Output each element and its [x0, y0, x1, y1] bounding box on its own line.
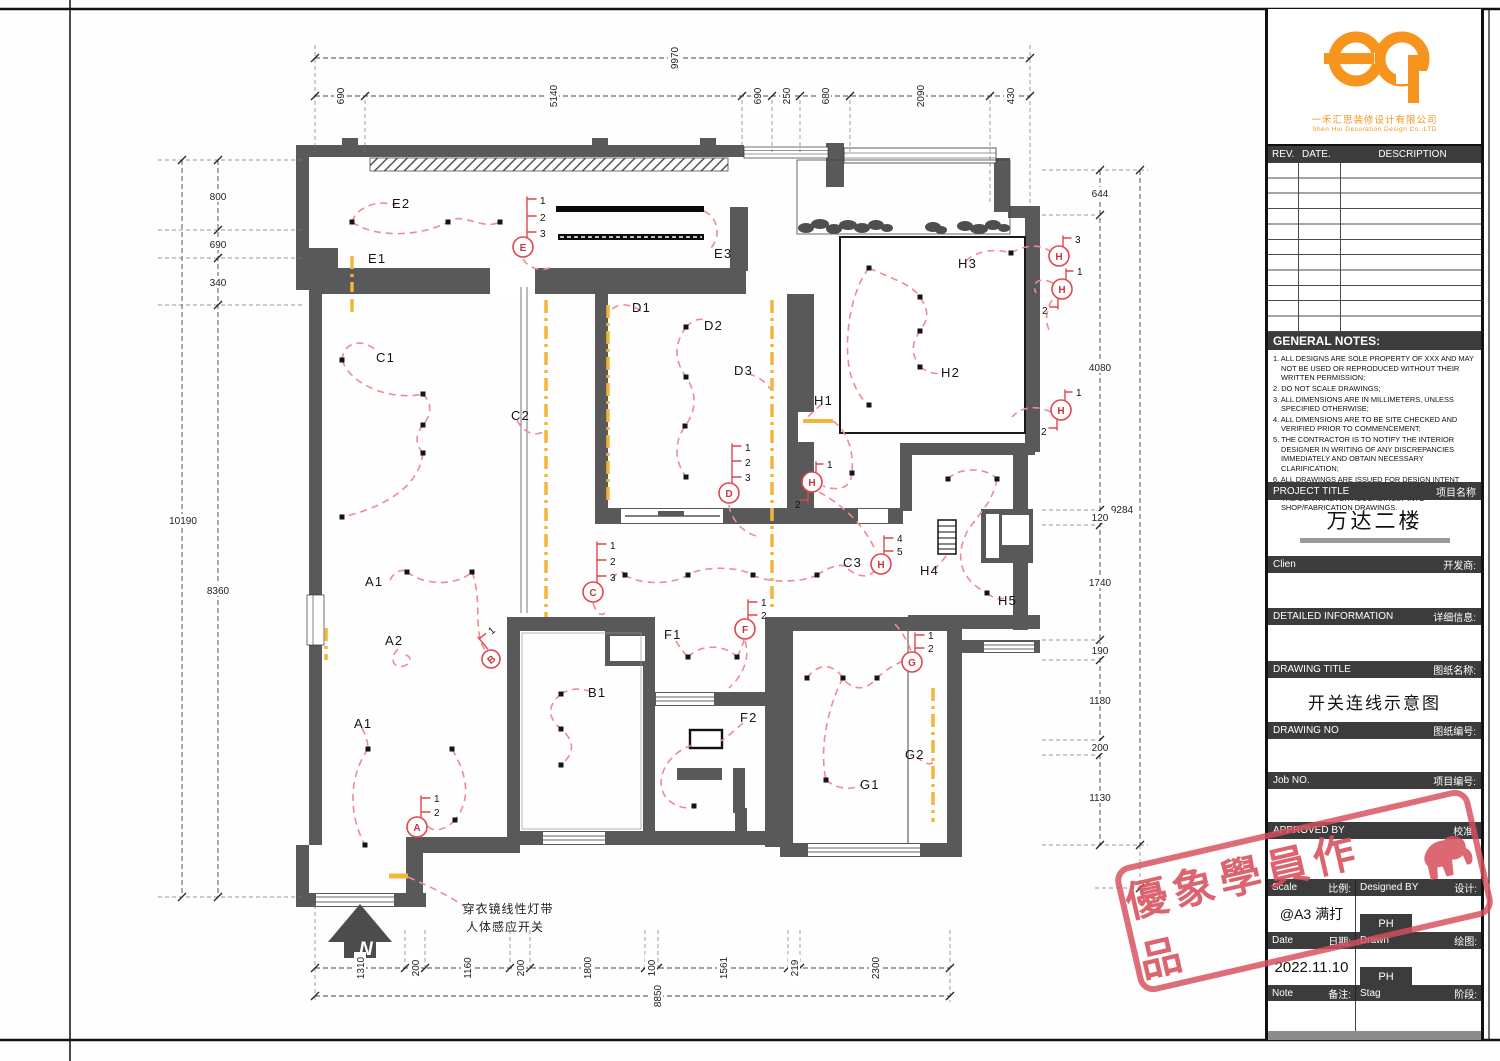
svg-text:200: 200	[516, 959, 527, 976]
svg-text:3: 3	[610, 573, 616, 584]
svg-text:219: 219	[790, 959, 801, 976]
svg-text:C: C	[589, 588, 596, 599]
label-E2: E2	[392, 196, 410, 211]
fixtures	[690, 520, 956, 748]
label-A1: A1	[365, 574, 383, 589]
svg-text:800: 800	[210, 192, 227, 203]
svg-text:9970: 9970	[670, 46, 681, 69]
svg-text:680: 680	[821, 87, 832, 104]
svg-text:2: 2	[540, 213, 546, 224]
rev-table	[1268, 163, 1481, 332]
svg-text:690: 690	[210, 240, 227, 251]
svg-text:200: 200	[411, 959, 422, 976]
switch-D: D 1 2 3	[719, 443, 751, 503]
svg-text:1130: 1130	[1089, 793, 1111, 804]
svg-text:2: 2	[795, 500, 801, 511]
project-title-bar: PROJECT TITLE 项目名称	[1268, 482, 1481, 500]
svg-text:8850: 8850	[653, 984, 664, 1007]
scale-value: @A3 满打	[1268, 896, 1356, 932]
svg-text:2: 2	[928, 644, 934, 655]
svg-text:1310: 1310	[356, 956, 367, 979]
svg-text:690: 690	[753, 87, 764, 104]
drawing-title-bar: DRAWING TITLE 图纸名称:	[1268, 661, 1481, 678]
label-F1: F1	[664, 627, 682, 642]
company-logo	[1268, 13, 1484, 105]
label-A1b: A1	[354, 716, 372, 731]
date-drawn-bar: Date日期: Drawn绘图:	[1268, 932, 1481, 949]
svg-text:3: 3	[1075, 235, 1081, 246]
svg-text:F: F	[742, 625, 748, 636]
svg-text:G: G	[908, 658, 916, 669]
company-logo-box: 一禾汇思装修设计有限公司 Shen Hui Decoration Design …	[1268, 9, 1481, 146]
svg-text:1: 1	[434, 794, 440, 805]
svg-text:D: D	[725, 489, 732, 500]
svg-text:1160: 1160	[463, 957, 474, 979]
svg-text:2: 2	[610, 557, 616, 568]
svg-text:4080: 4080	[1089, 363, 1112, 374]
svg-text:人体感应开关: 人体感应开关	[466, 919, 544, 934]
switch-C: C 1 2 3	[583, 541, 616, 602]
switch-H-lower: H 1 2	[1041, 388, 1082, 438]
label-C2: C2	[511, 408, 530, 423]
label-E1: E1	[368, 251, 386, 266]
general-notes-header: GENERAL NOTES:	[1268, 332, 1481, 350]
date-drawn-values: 2022.11.10 PH	[1268, 949, 1481, 985]
scale-designed-bar: Scale比例: Designed BY设计:	[1268, 879, 1481, 896]
note-3: 3. ALL DIMENSIONS ARE IN MILLIMETERS, UN…	[1273, 395, 1476, 414]
rev-table-header: REV. DATE. DESCRIPTION	[1268, 146, 1481, 163]
svg-text:1: 1	[610, 541, 616, 552]
svg-text:100: 100	[647, 959, 658, 976]
drawn-value: PH	[1360, 967, 1412, 986]
note-4: 4. ALL DIMENSIONS ARE TO BE SITE CHECKED…	[1273, 415, 1476, 434]
linear-light-bars	[556, 206, 704, 240]
svg-text:8360: 8360	[207, 586, 230, 597]
svg-text:A: A	[413, 823, 420, 834]
svg-text:2300: 2300	[871, 956, 882, 979]
svg-text:1: 1	[487, 625, 499, 637]
note-5: 5. THE CONTRACTOR IS TO NOTIFY THE INTER…	[1273, 435, 1476, 474]
svg-text:2: 2	[434, 808, 440, 819]
switch-F: F 1 2	[735, 598, 767, 639]
detailed-info-bar: DETAILED INFORMATION 详细信息:	[1268, 608, 1481, 625]
label-H1: H1	[814, 393, 833, 408]
svg-text:190: 190	[1092, 646, 1109, 657]
annotation-note: 穿衣镜线性灯带 人体感应开关	[462, 901, 553, 934]
svg-text:2: 2	[1041, 427, 1047, 438]
svg-text:120: 120	[1092, 513, 1109, 524]
titleblock-footer-strip	[1268, 1031, 1481, 1040]
note-2: 2. DO NOT SCALE DRAWINGS;	[1273, 384, 1476, 394]
svg-text:2: 2	[1042, 306, 1048, 317]
note-stage-values	[1268, 1001, 1481, 1031]
svg-text:E: E	[520, 243, 527, 254]
svg-text:1: 1	[1076, 388, 1082, 399]
svg-text:430: 430	[1006, 87, 1017, 104]
label-H5: H5	[998, 593, 1017, 608]
svg-text:2090: 2090	[916, 84, 927, 107]
project-title-underline	[1300, 538, 1450, 543]
label-E3: E3	[714, 246, 732, 261]
designed-by-value: PH	[1360, 914, 1412, 933]
svg-text:1: 1	[1077, 267, 1083, 278]
note-stage-bar: Note备注: Stag阶段:	[1268, 985, 1481, 1001]
svg-text:1: 1	[540, 196, 546, 207]
svg-text:5140: 5140	[549, 84, 560, 107]
label-H2: H2	[941, 365, 960, 380]
scale-designed-values: @A3 满打 PH	[1268, 896, 1481, 932]
label-D3: D3	[734, 363, 753, 378]
svg-text:690: 690	[336, 87, 347, 104]
switch-H-corridor: H 4 5	[871, 534, 903, 574]
svg-text:10190: 10190	[169, 516, 197, 527]
drawing-title-value: 开关连线示意图	[1268, 678, 1481, 722]
north-arrow: N	[328, 904, 392, 960]
svg-text:5: 5	[897, 547, 903, 558]
svg-text:1800: 1800	[583, 956, 594, 979]
switch-G: G 1 2	[902, 631, 934, 672]
label-G2: G2	[905, 747, 925, 762]
title-block: 一禾汇思装修设计有限公司 Shen Hui Decoration Design …	[1265, 9, 1484, 1040]
date-value: 2022.11.10	[1268, 949, 1356, 985]
label-F2: F2	[740, 710, 758, 725]
svg-text:3: 3	[540, 229, 546, 240]
svg-text:200: 200	[1092, 743, 1109, 754]
label-C3: C3	[843, 555, 862, 570]
general-notes-body: 1. ALL DESIGNS ARE SOLE PROPERTY OF XXX …	[1268, 350, 1481, 482]
svg-text:H: H	[1058, 285, 1065, 296]
svg-text:644: 644	[1092, 189, 1109, 200]
svg-text:1: 1	[745, 443, 751, 454]
company-name-cn: 一禾汇思装修设计有限公司	[1268, 112, 1481, 126]
approved-by-bar: APPROVED BY 校准:	[1268, 822, 1481, 839]
label-G1: G1	[860, 777, 880, 792]
label-H3: H3	[958, 256, 977, 271]
svg-text:1: 1	[928, 631, 934, 642]
mirror-fixture	[690, 730, 722, 748]
svg-text:1: 1	[761, 598, 767, 609]
svg-text:2: 2	[745, 458, 751, 469]
svg-text:1740: 1740	[1089, 578, 1112, 589]
svg-text:250: 250	[782, 87, 793, 104]
label-B1: B1	[588, 685, 606, 700]
plants	[798, 219, 1010, 234]
label-A2: A2	[385, 633, 403, 648]
svg-text:1: 1	[827, 460, 833, 471]
company-name-en: Shen Hui Decoration Design Co.,LTD	[1268, 126, 1481, 133]
label-C1: C1	[376, 350, 395, 365]
switch-B: B 1	[467, 625, 513, 672]
switch-H-upper: H 1 2	[1042, 267, 1083, 317]
svg-text:9284: 9284	[1111, 505, 1134, 516]
drawing-sheet: E 1 2 3 C 1 2 3 D 1 2 3 A 1 2	[0, 0, 1500, 1061]
svg-text:H: H	[877, 560, 884, 571]
svg-text:H: H	[808, 478, 815, 489]
svg-text:1561: 1561	[719, 956, 730, 979]
label-D1: D1	[632, 300, 651, 315]
svg-text:2: 2	[761, 611, 767, 622]
job-no-bar: Job NO. 项目编号:	[1268, 772, 1481, 789]
drawing-no-bar: DRAWING NO 图纸编号:	[1268, 722, 1481, 739]
svg-text:4: 4	[897, 534, 903, 545]
project-title-value: 万达二楼	[1268, 500, 1481, 556]
client-bar: Clien 开发商:	[1268, 556, 1481, 573]
note-1: 1. ALL DESIGNS ARE SOLE PROPERTY OF XXX …	[1273, 354, 1476, 383]
label-H4: H4	[920, 563, 939, 578]
switch-H-top: H 3	[1049, 235, 1081, 266]
label-D2: D2	[704, 318, 723, 333]
svg-text:H: H	[1055, 252, 1062, 263]
svg-text:H: H	[1057, 406, 1064, 417]
svg-text:3: 3	[745, 473, 751, 484]
svg-text:穿衣镜线性灯带: 穿衣镜线性灯带	[462, 901, 553, 916]
svg-text:1180: 1180	[1089, 696, 1111, 707]
svg-text:340: 340	[210, 278, 227, 289]
switch-E: E 1 2 3	[513, 196, 546, 257]
switch-A: A 1 2	[407, 794, 440, 837]
